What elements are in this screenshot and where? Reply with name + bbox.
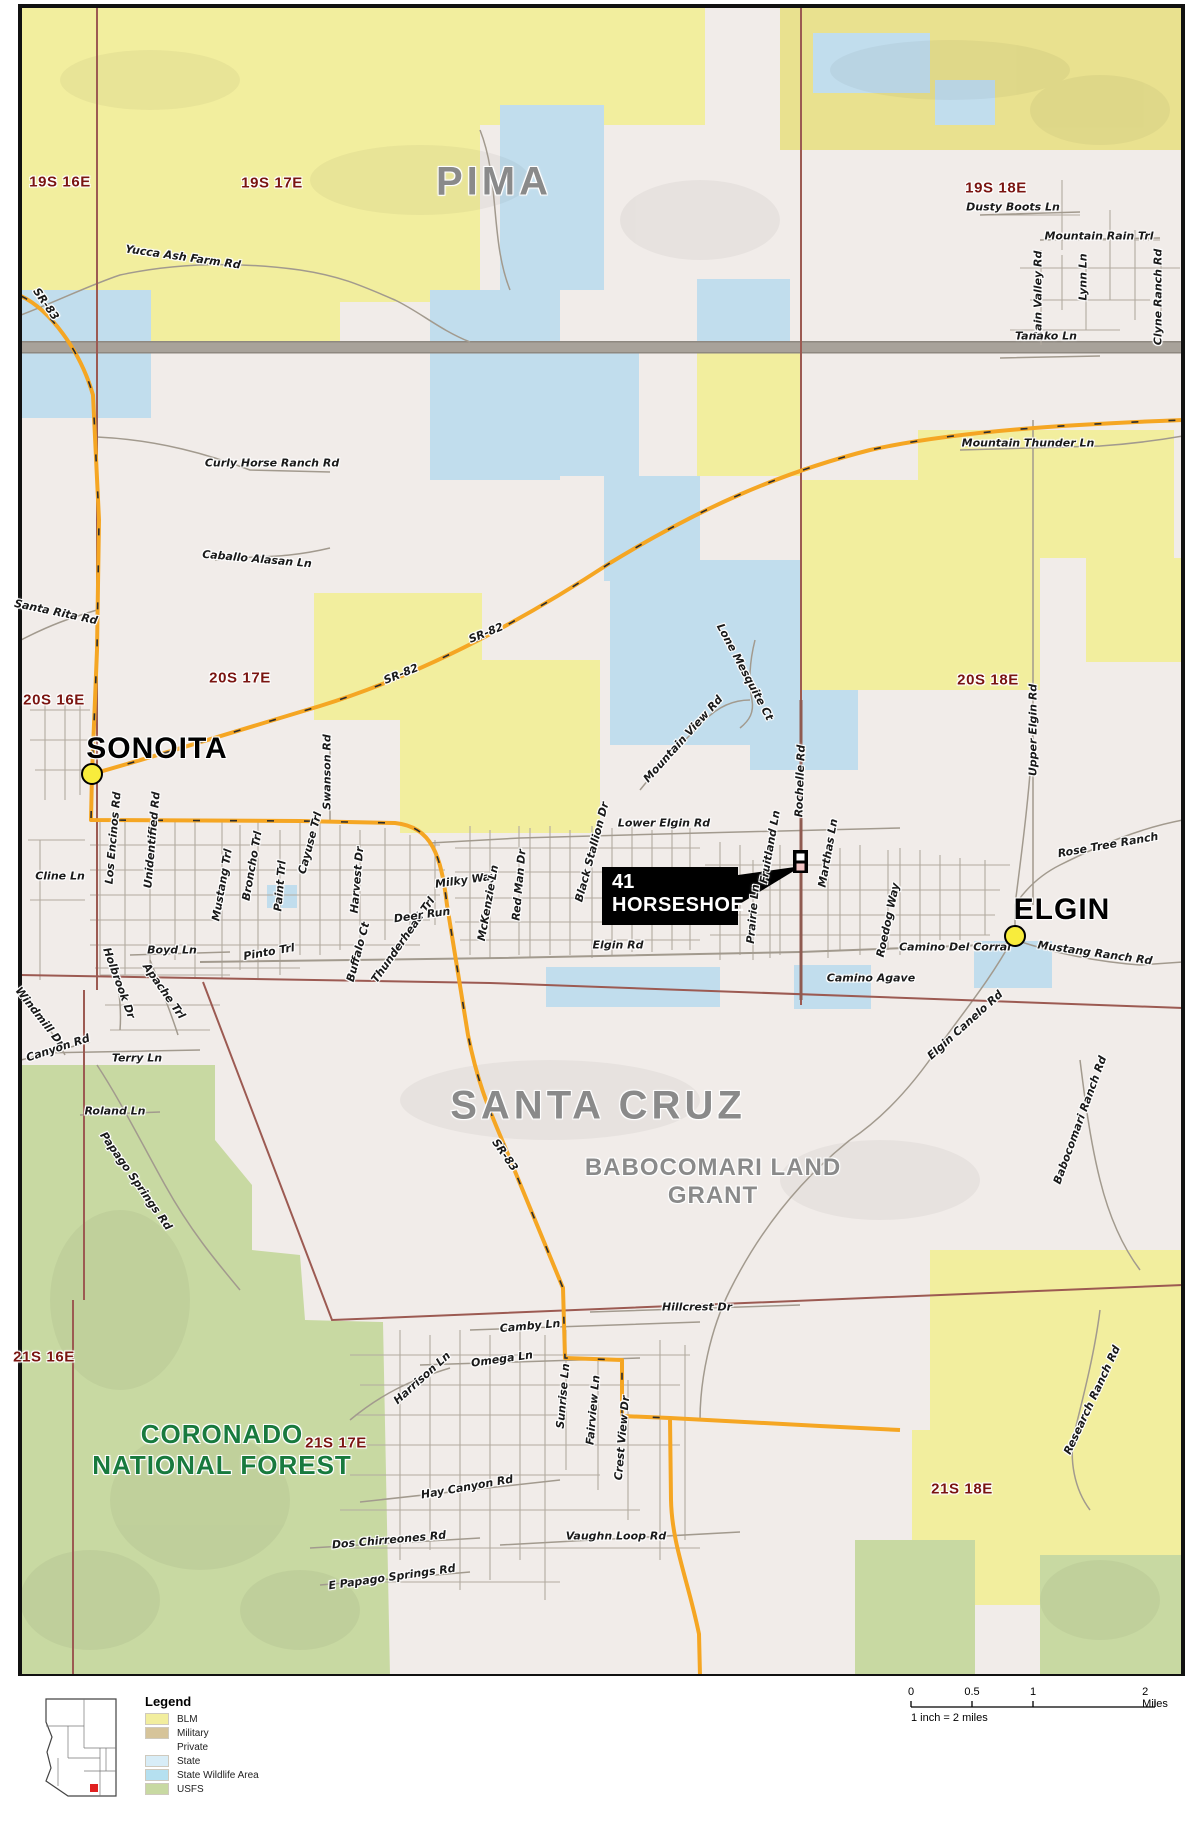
location-marker [90, 1784, 98, 1792]
legend-item: State Wildlife Area [145, 1768, 259, 1782]
legend-swatch [145, 1741, 169, 1753]
legend-swatch [145, 1713, 169, 1725]
arizona-inset-map [38, 1696, 120, 1800]
legend-label: BLM [177, 1714, 198, 1725]
legend-swatch [145, 1727, 169, 1739]
legend-item: Private [145, 1740, 259, 1754]
site-callout: 41 HORSESHOE [602, 867, 738, 925]
legend-label: State Wildlife Area [177, 1770, 259, 1781]
legend-label: USFS [177, 1784, 204, 1795]
legend-label: State [177, 1756, 200, 1767]
scale-tick-label: 0.5 [964, 1686, 979, 1698]
scale-tick-label: 1 [1030, 1686, 1036, 1698]
site-number: 41 [612, 871, 738, 894]
site-name: HORSESHOE [612, 894, 738, 917]
legend-item: USFS [145, 1782, 259, 1796]
legend-swatch [145, 1755, 169, 1767]
scale-note: 1 inch = 2 miles [911, 1712, 988, 1724]
legend: Legend BLMMilitaryPrivateStateState Wild… [145, 1694, 259, 1796]
map-canvas[interactable] [0, 0, 1200, 1829]
legend-swatch [145, 1769, 169, 1781]
scale-bar: 00.512 Miles 1 inch = 2 miles [905, 1686, 1165, 1726]
legend-item: State [145, 1754, 259, 1768]
scale-tick-label: 0 [908, 1686, 914, 1698]
map-page: Yucca Ash Farm RdSR-83Dusty Boots LnMoun… [0, 0, 1200, 1829]
legend-label: Private [177, 1742, 208, 1753]
legend-item: Military [145, 1726, 259, 1740]
footer-panel: Legend BLMMilitaryPrivateStateState Wild… [0, 1676, 1200, 1829]
legend-swatch [145, 1783, 169, 1795]
legend-label: Military [177, 1728, 209, 1739]
legend-item: BLM [145, 1712, 259, 1726]
legend-title: Legend [145, 1694, 259, 1709]
